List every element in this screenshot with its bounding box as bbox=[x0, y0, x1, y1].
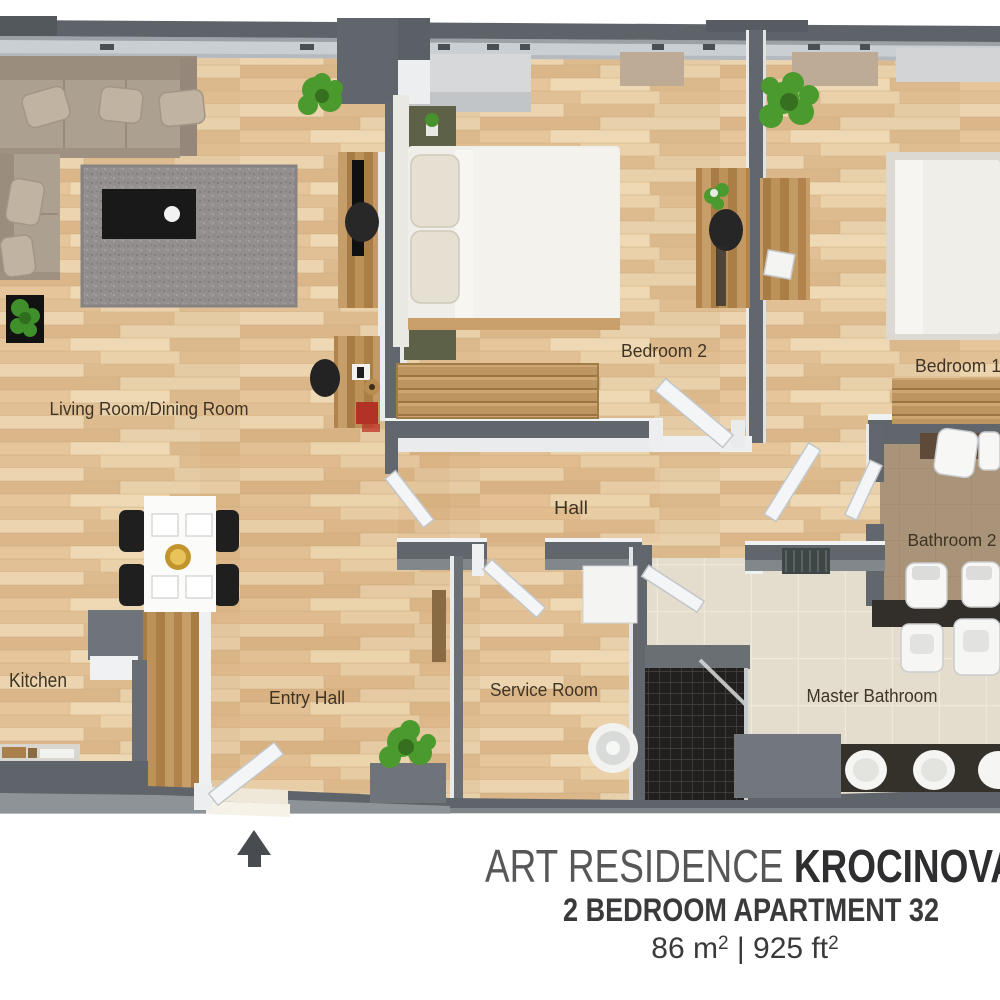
svg-text:86 m2 | 925 ft2: 86 m2 | 925 ft2 bbox=[651, 932, 838, 965]
svg-text:ART RESIDENCE KROCINOVA: ART RESIDENCE KROCINOVA bbox=[485, 840, 1000, 892]
svg-text:Master Bathroom: Master Bathroom bbox=[807, 685, 938, 706]
svg-text:Bedroom 1: Bedroom 1 bbox=[915, 355, 1000, 376]
svg-text:Bedroom 2: Bedroom 2 bbox=[621, 340, 707, 361]
svg-text:2 BEDROOM APARTMENT 32: 2 BEDROOM APARTMENT 32 bbox=[563, 892, 939, 928]
svg-text:Bathroom 2: Bathroom 2 bbox=[908, 530, 997, 550]
svg-text:Service Room: Service Room bbox=[490, 679, 598, 700]
svg-text:Living Room/Dining Room: Living Room/Dining Room bbox=[50, 398, 249, 419]
svg-text:Entry Hall: Entry Hall bbox=[269, 687, 345, 708]
svg-text:Hall: Hall bbox=[554, 497, 588, 518]
svg-text:Kitchen: Kitchen bbox=[9, 670, 67, 692]
